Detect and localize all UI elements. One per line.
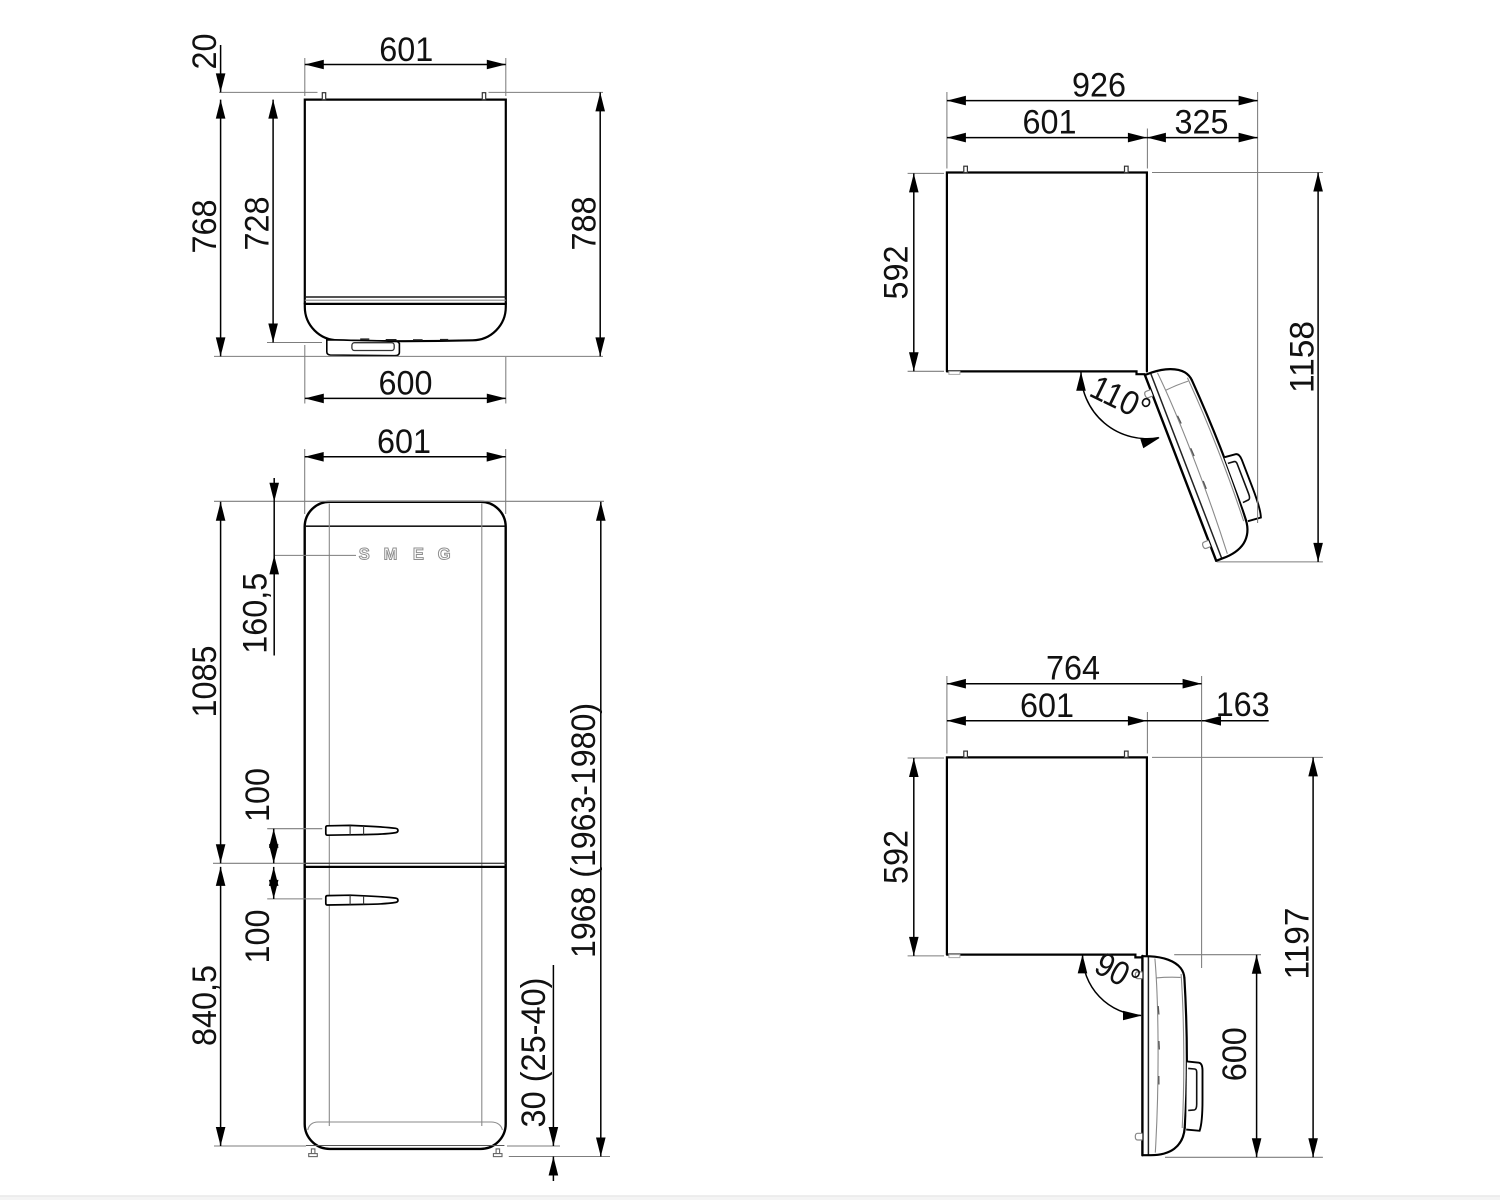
svg-text:1197: 1197 — [1279, 908, 1317, 980]
svg-text:325: 325 — [1175, 104, 1229, 142]
svg-text:592: 592 — [877, 246, 915, 300]
svg-text:764: 764 — [1046, 650, 1100, 688]
svg-text:592: 592 — [877, 830, 915, 884]
svg-text:601: 601 — [379, 31, 433, 69]
svg-text:E: E — [413, 546, 424, 564]
svg-text:100: 100 — [239, 768, 277, 822]
svg-text:20: 20 — [186, 34, 224, 70]
svg-text:1158: 1158 — [1284, 321, 1322, 393]
svg-text:601: 601 — [1020, 687, 1074, 725]
svg-text:840,5: 840,5 — [186, 965, 224, 1046]
svg-text:788: 788 — [566, 197, 604, 251]
svg-text:30 (25-40): 30 (25-40) — [515, 978, 553, 1128]
svg-text:1085: 1085 — [186, 646, 224, 718]
svg-text:1968 (1963-1980): 1968 (1963-1980) — [565, 703, 603, 958]
svg-text:100: 100 — [239, 910, 277, 964]
svg-text:768: 768 — [186, 200, 224, 254]
svg-text:728: 728 — [239, 197, 277, 251]
svg-text:M: M — [384, 546, 398, 564]
svg-text:601: 601 — [1023, 104, 1077, 142]
svg-text:926: 926 — [1072, 67, 1126, 105]
svg-text:S: S — [359, 546, 370, 564]
svg-text:601: 601 — [377, 423, 431, 461]
svg-text:600: 600 — [379, 364, 433, 402]
svg-text:163: 163 — [1216, 686, 1270, 724]
svg-text:160,5: 160,5 — [237, 573, 275, 654]
svg-text:600: 600 — [1216, 1027, 1254, 1081]
svg-text:G: G — [438, 546, 451, 564]
